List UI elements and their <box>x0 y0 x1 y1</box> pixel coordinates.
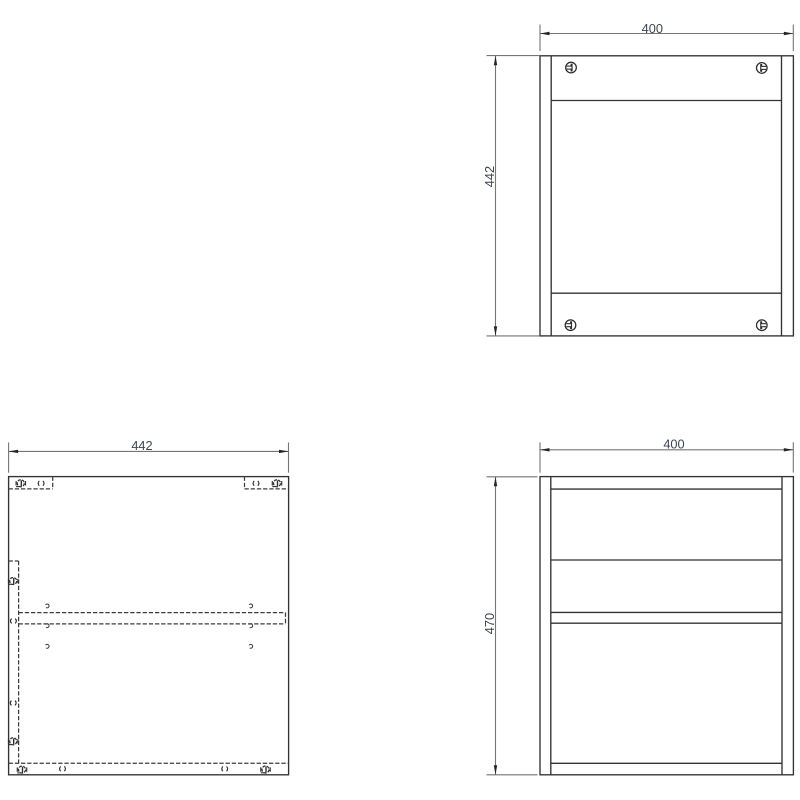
svg-text:442: 442 <box>482 166 497 187</box>
svg-text:442: 442 <box>131 438 152 453</box>
svg-text:470: 470 <box>482 613 497 634</box>
svg-text:400: 400 <box>663 437 684 452</box>
svg-text:400: 400 <box>642 21 663 36</box>
